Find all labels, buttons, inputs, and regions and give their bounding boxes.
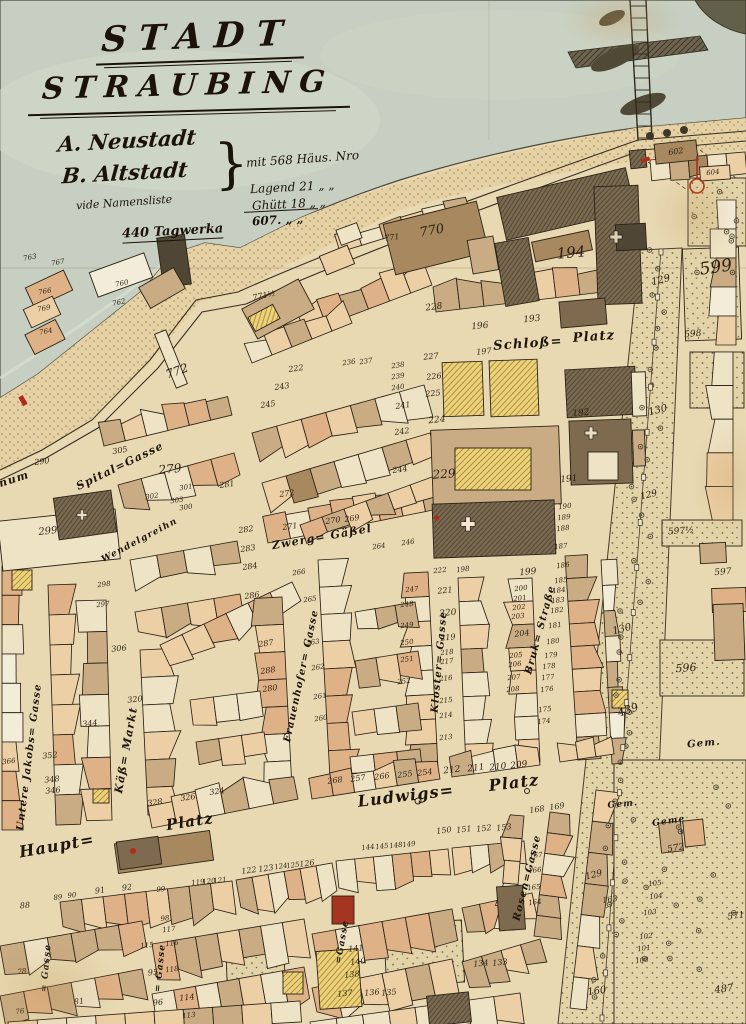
- building: [241, 732, 267, 757]
- building: [143, 704, 176, 733]
- building: [168, 886, 193, 924]
- building: [565, 555, 588, 579]
- building: [461, 648, 484, 673]
- building: [654, 140, 698, 164]
- building: [707, 453, 733, 487]
- building: [683, 819, 706, 847]
- building: [53, 734, 75, 765]
- building: [2, 742, 19, 771]
- building: [352, 709, 377, 735]
- building: [500, 837, 522, 862]
- building: [460, 624, 490, 649]
- building: [709, 287, 736, 316]
- building: [572, 667, 601, 692]
- building: [569, 622, 600, 646]
- building: [269, 777, 298, 804]
- building: [125, 1012, 156, 1024]
- building: [631, 372, 647, 416]
- building: [261, 706, 289, 735]
- building: [559, 298, 607, 328]
- building: [2, 683, 21, 712]
- building: [332, 896, 354, 924]
- building: [494, 993, 524, 1024]
- building: [601, 559, 618, 585]
- building: [183, 1007, 214, 1024]
- building: [237, 691, 264, 721]
- building: [82, 663, 108, 695]
- building: [79, 694, 109, 726]
- building: [219, 735, 246, 765]
- garden-parcel: [662, 520, 742, 546]
- building: [699, 542, 726, 563]
- building: [396, 703, 422, 732]
- building: [429, 849, 450, 875]
- building: [2, 625, 24, 654]
- building: [464, 719, 492, 744]
- building: [148, 802, 177, 828]
- building: [411, 851, 432, 877]
- building: [467, 236, 499, 274]
- building: [2, 595, 19, 624]
- building: [355, 609, 378, 629]
- building: [515, 693, 538, 717]
- building: [283, 972, 303, 994]
- building: [509, 647, 536, 671]
- building: [355, 857, 376, 883]
- building: [710, 229, 736, 258]
- building: [452, 846, 472, 875]
- building: [468, 997, 498, 1024]
- building: [2, 713, 23, 742]
- building: [496, 885, 525, 931]
- building: [534, 915, 562, 939]
- building: [352, 771, 376, 792]
- building: [255, 652, 287, 681]
- building: [210, 541, 241, 566]
- building: [87, 631, 107, 663]
- building: [609, 712, 624, 738]
- building: [95, 925, 123, 950]
- building: [251, 597, 283, 626]
- building: [212, 1005, 243, 1024]
- building: [537, 895, 561, 919]
- building: [442, 361, 484, 416]
- building: [213, 694, 240, 722]
- building: [401, 572, 429, 598]
- building: [581, 883, 608, 917]
- map-title-line1: STADT: [87, 12, 310, 61]
- building: [588, 452, 618, 480]
- building: [577, 915, 599, 949]
- garden-parcel: [614, 760, 746, 1024]
- building: [575, 713, 607, 738]
- building: [570, 977, 589, 1010]
- building: [397, 651, 422, 679]
- building: [2, 654, 16, 683]
- building: [589, 821, 613, 855]
- building: [552, 268, 580, 298]
- building: [96, 1014, 127, 1024]
- historic-city-map: 770771771½772194193196197228227226225224…: [0, 0, 746, 1024]
- building: [427, 992, 472, 1024]
- building: [456, 279, 484, 309]
- building: [415, 761, 440, 782]
- building: [395, 602, 419, 628]
- building: [503, 860, 520, 884]
- building: [2, 801, 23, 830]
- building: [514, 716, 539, 740]
- building: [93, 789, 109, 803]
- building: [432, 500, 556, 558]
- building: [87, 726, 110, 758]
- building: [455, 448, 531, 490]
- building: [602, 585, 615, 611]
- building: [462, 672, 490, 697]
- building: [323, 640, 356, 669]
- building: [493, 745, 518, 771]
- legend-brace: }: [213, 131, 250, 195]
- building: [712, 352, 733, 386]
- building: [12, 570, 32, 590]
- building: [141, 676, 178, 705]
- building: [605, 636, 621, 662]
- building: [327, 722, 350, 750]
- building: [116, 836, 161, 870]
- building: [145, 759, 175, 788]
- building: [557, 743, 578, 762]
- building: [489, 359, 539, 417]
- building: [585, 852, 608, 886]
- building: [350, 754, 376, 773]
- building: [55, 794, 83, 825]
- building: [103, 894, 128, 925]
- building: [713, 603, 745, 660]
- building: [76, 600, 107, 632]
- building: [321, 613, 352, 642]
- building: [463, 696, 486, 721]
- building: [717, 200, 736, 229]
- building: [49, 614, 76, 645]
- building: [374, 706, 400, 735]
- building: [316, 949, 362, 1010]
- building: [509, 670, 537, 694]
- building: [190, 697, 217, 725]
- building: [54, 764, 83, 795]
- building: [700, 165, 731, 181]
- building: [568, 599, 600, 624]
- building: [508, 578, 533, 602]
- building: [565, 366, 637, 418]
- building: [154, 1009, 185, 1024]
- building: [255, 624, 284, 653]
- building: [309, 774, 334, 799]
- building: [330, 768, 355, 796]
- building: [515, 745, 540, 768]
- building: [393, 759, 418, 786]
- building: [716, 316, 736, 345]
- legend-total: 607. „ „: [252, 212, 304, 229]
- building: [658, 821, 683, 853]
- building: [574, 690, 606, 714]
- building: [196, 739, 222, 765]
- building: [242, 1003, 273, 1024]
- building: [607, 661, 619, 687]
- building: [547, 812, 570, 836]
- building: [271, 1001, 302, 1024]
- building: [50, 644, 72, 675]
